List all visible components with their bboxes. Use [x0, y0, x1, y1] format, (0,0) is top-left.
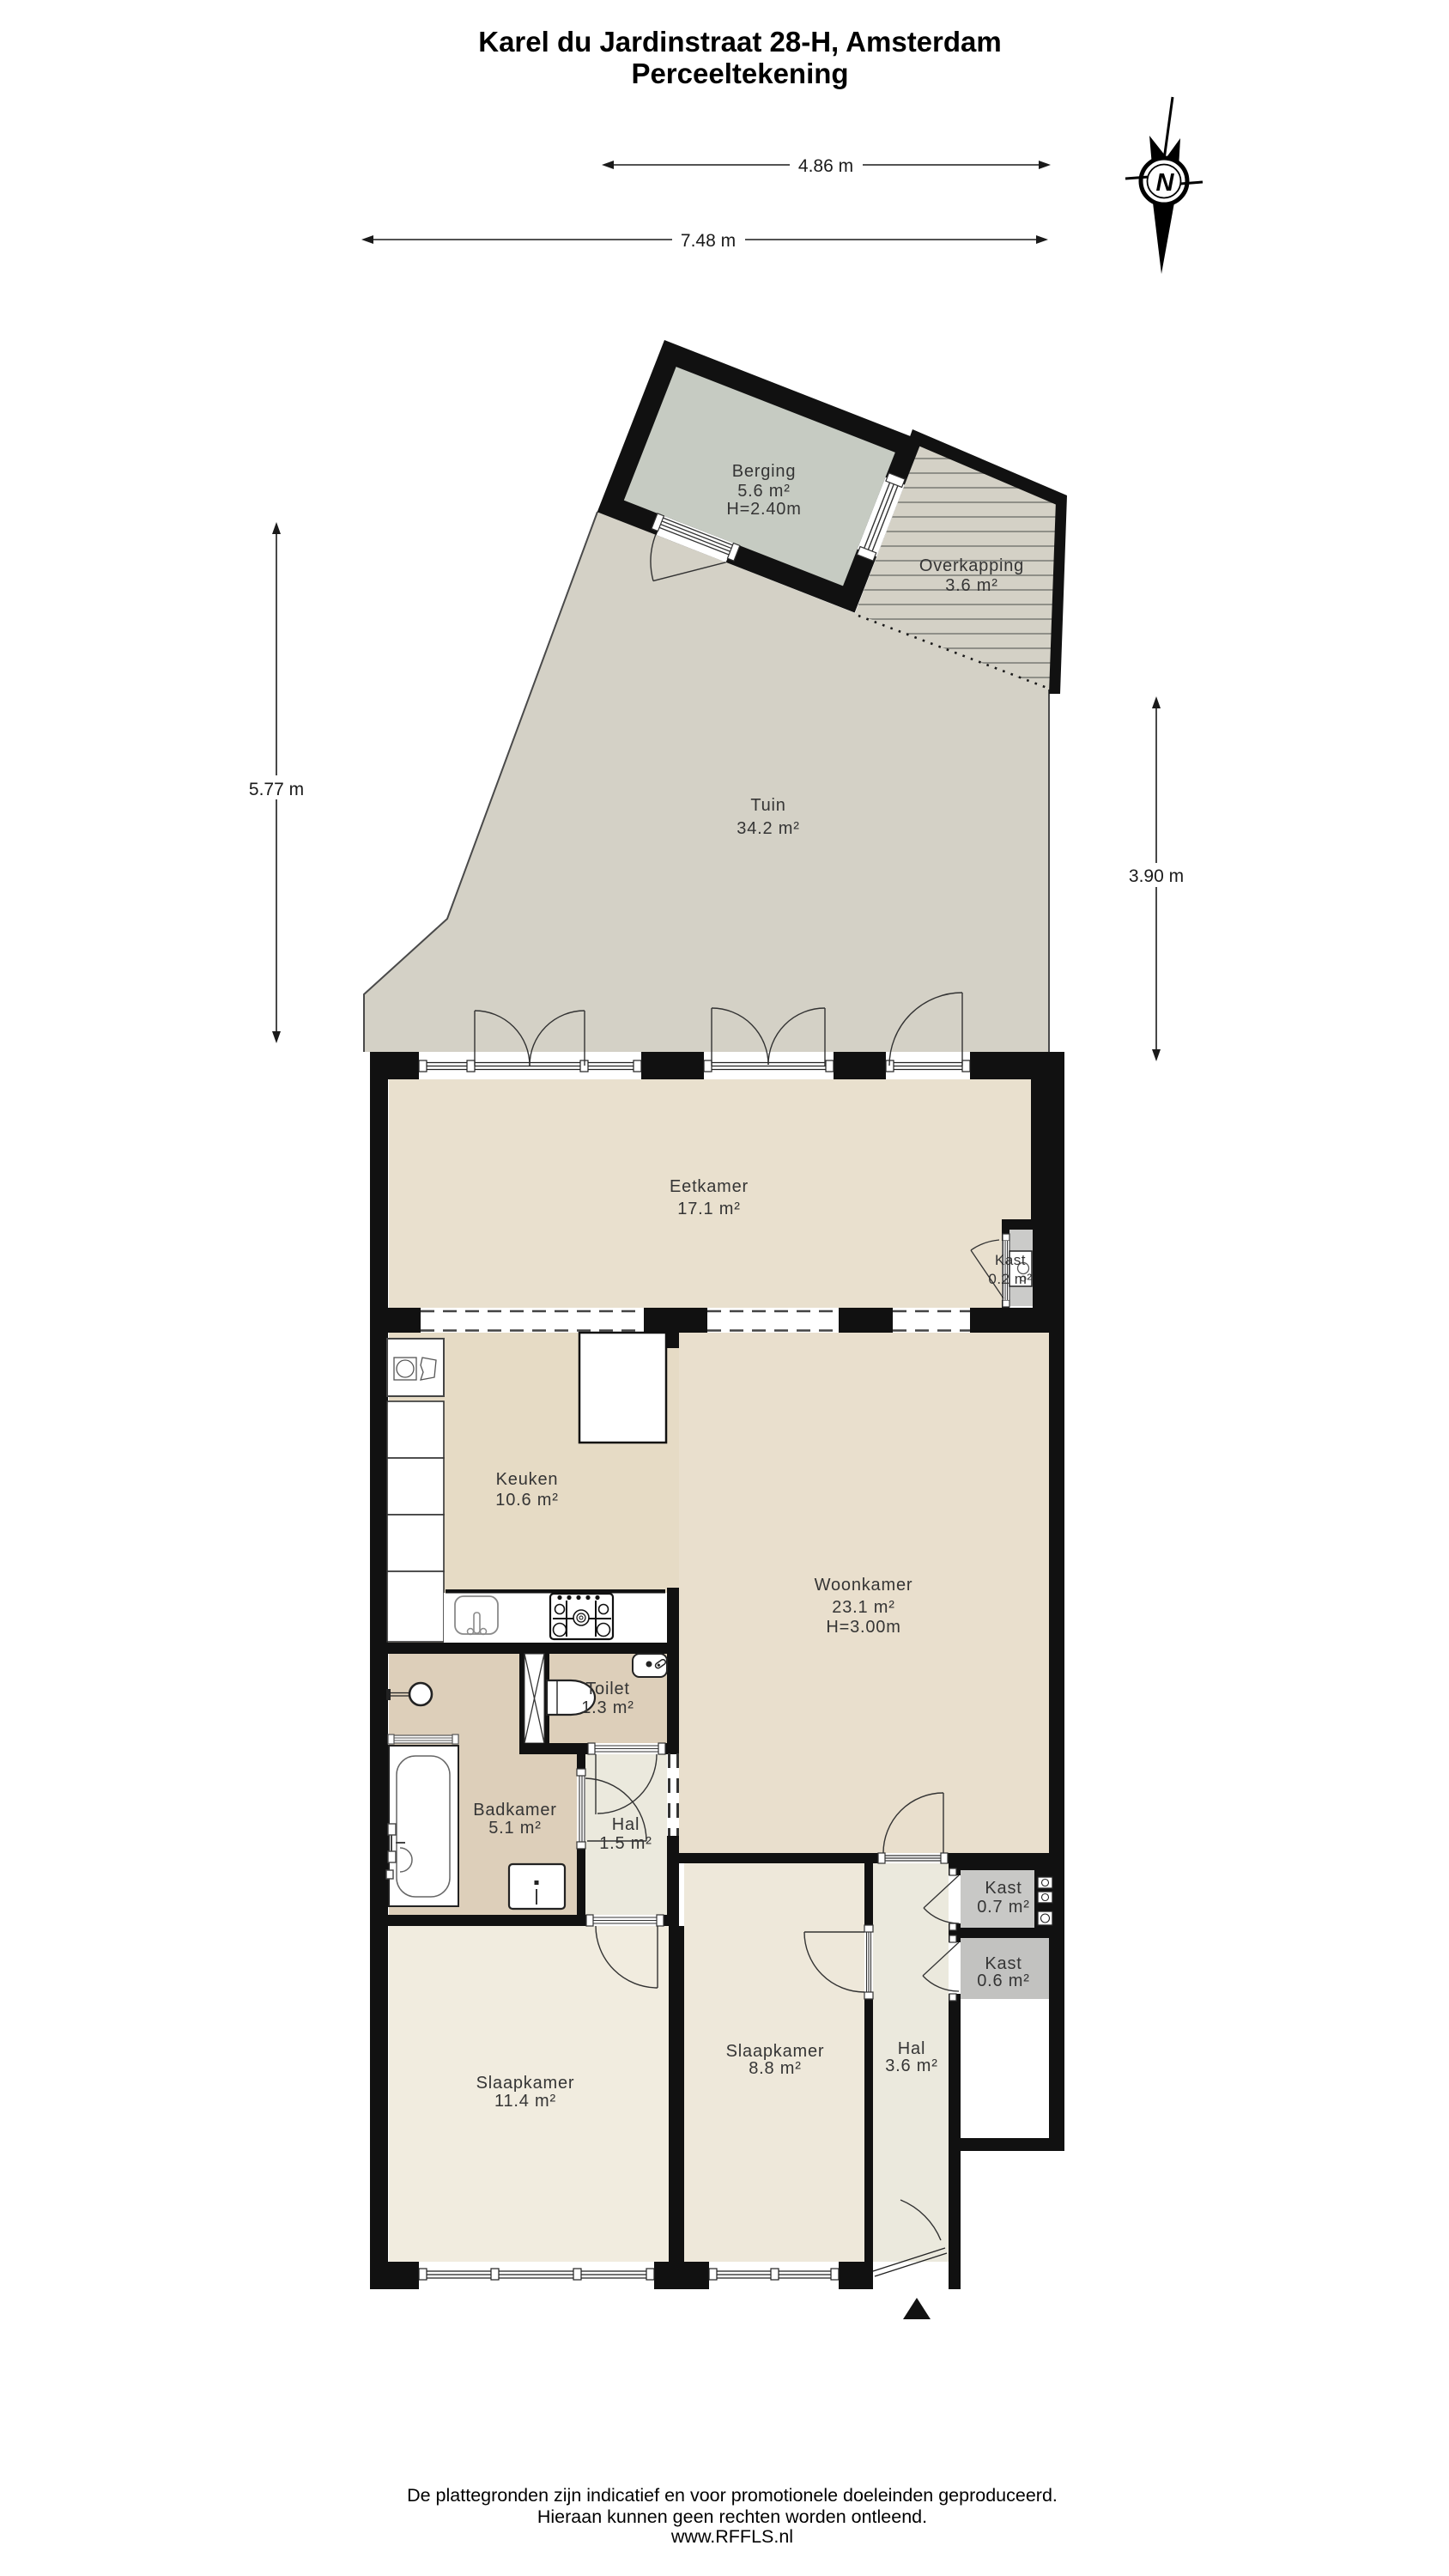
svg-text:Overkapping: Overkapping: [919, 556, 1024, 575]
svg-text:3.6 m²: 3.6 m²: [885, 2057, 937, 2075]
svg-text:Woonkamer: Woonkamer: [815, 1576, 913, 1595]
svg-text:Eetkamer: Eetkamer: [670, 1177, 749, 1196]
svg-text:0.2 m²: 0.2 m²: [988, 1271, 1032, 1287]
svg-text:Hieraan kunnen geen rechten wo: Hieraan kunnen geen rechten worden ontle…: [537, 2506, 927, 2527]
svg-text:Slaapkamer: Slaapkamer: [476, 2074, 575, 2093]
svg-text:De plattegronden zijn indicati: De plattegronden zijn indicatief en voor…: [407, 2485, 1058, 2506]
svg-text:Kast: Kast: [995, 1252, 1026, 1268]
svg-text:Badkamer: Badkamer: [473, 1801, 557, 1820]
svg-text:11.4 m²: 11.4 m²: [494, 2092, 556, 2111]
svg-text:H=3.00m: H=3.00m: [826, 1618, 900, 1637]
svg-text:Toilet: Toilet: [585, 1680, 630, 1698]
svg-text:Hal: Hal: [612, 1815, 640, 1834]
svg-text:17.1 m²: 17.1 m²: [677, 1200, 740, 1218]
svg-text:0.7 m²: 0.7 m²: [977, 1898, 1029, 1917]
svg-text:Perceeltekening: Perceeltekening: [631, 58, 848, 89]
svg-text:www.RFFLS.nl: www.RFFLS.nl: [670, 2526, 793, 2547]
svg-text:10.6 m²: 10.6 m²: [495, 1491, 558, 1510]
svg-text:Tuin: Tuin: [750, 796, 785, 815]
svg-text:H=2.40m: H=2.40m: [726, 500, 801, 519]
svg-text:3.90 m: 3.90 m: [1129, 866, 1184, 886]
svg-text:Keuken: Keuken: [496, 1470, 559, 1489]
svg-text:5.6 m²: 5.6 m²: [737, 482, 790, 501]
svg-text:Hal: Hal: [898, 2039, 925, 2058]
svg-text:0.6 m²: 0.6 m²: [977, 1971, 1029, 1990]
svg-text:1.3 m²: 1.3 m²: [581, 1698, 634, 1717]
svg-text:5.1 m²: 5.1 m²: [488, 1819, 541, 1838]
svg-text:8.8 m²: 8.8 m²: [749, 2059, 801, 2078]
svg-text:1.5 m²: 1.5 m²: [599, 1834, 652, 1853]
svg-text:Berging: Berging: [732, 462, 797, 481]
svg-text:N: N: [1156, 169, 1175, 197]
svg-text:3.6 m²: 3.6 m²: [945, 576, 997, 595]
svg-text:34.2 m²: 34.2 m²: [737, 819, 799, 838]
svg-text:Slaapkamer: Slaapkamer: [726, 2042, 825, 2061]
svg-text:Kast: Kast: [985, 1879, 1022, 1898]
svg-text:Karel du Jardinstraat 28-H, Am: Karel du Jardinstraat 28-H, Amsterdam: [478, 26, 1002, 58]
svg-text:5.77 m: 5.77 m: [249, 780, 304, 799]
svg-text:4.86 m: 4.86 m: [798, 156, 853, 176]
svg-text:Kast: Kast: [985, 1954, 1022, 1973]
svg-text:23.1 m²: 23.1 m²: [832, 1598, 894, 1617]
svg-text:7.48 m: 7.48 m: [681, 231, 736, 251]
